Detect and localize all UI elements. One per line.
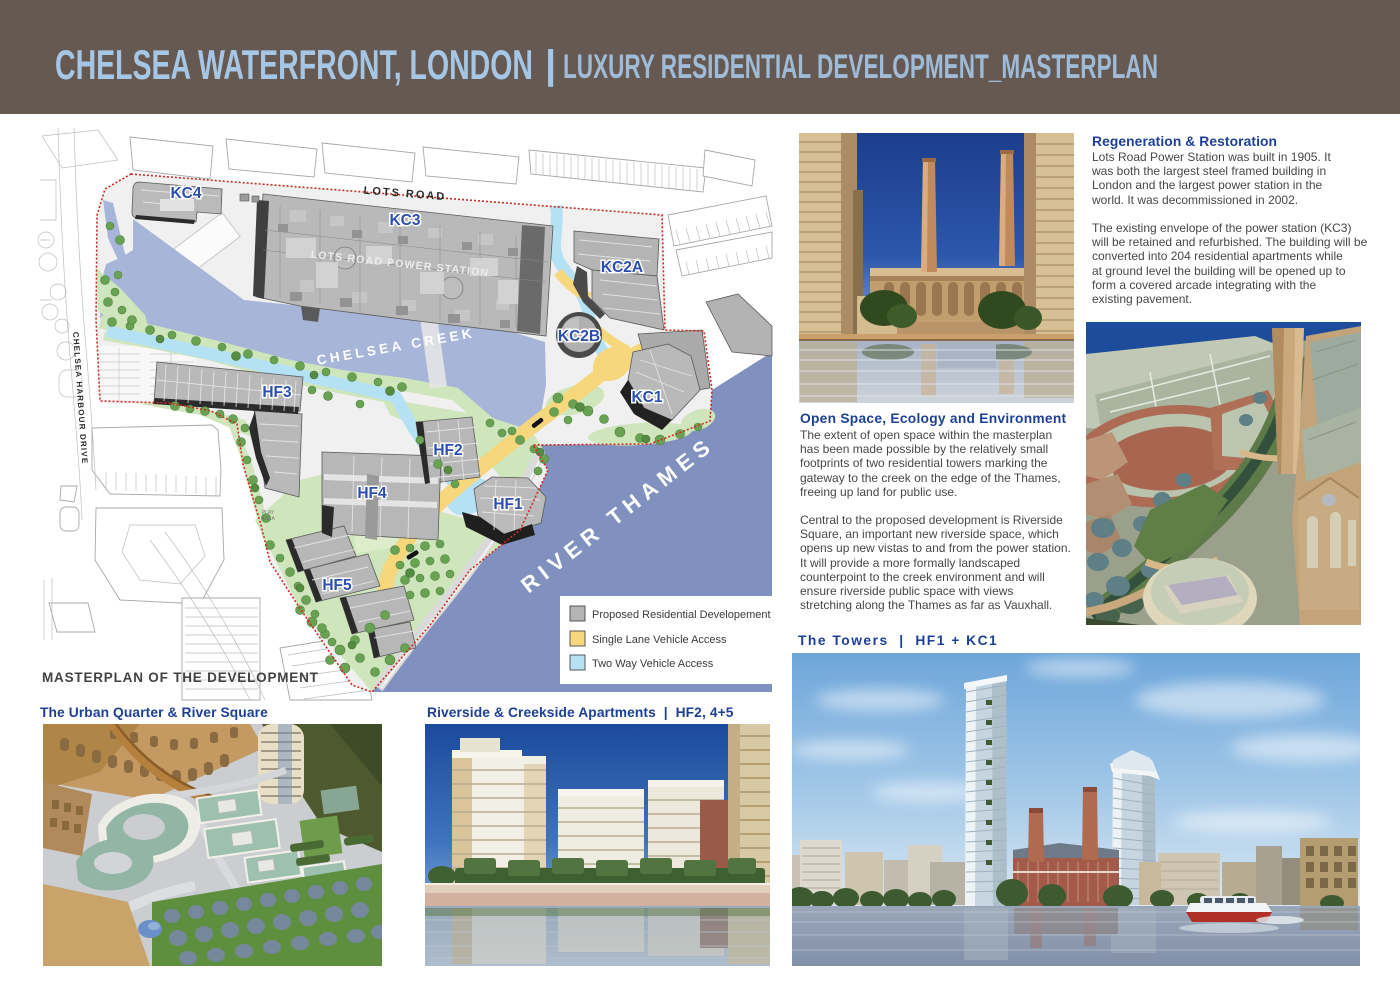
- svg-text:Proposed Residential Developem: Proposed Residential Developement: [592, 609, 771, 621]
- svg-text:KC2A: KC2A: [601, 259, 643, 276]
- svg-text:HF1: HF1: [493, 496, 523, 513]
- svg-text:CHELSEA WATERFRONT, LONDON: CHELSEA WATERFRONT, LONDON: [55, 41, 533, 88]
- svg-text:KC4: KC4: [170, 185, 201, 202]
- svg-text:|: |: [545, 43, 556, 87]
- svg-text:HF5: HF5: [322, 577, 352, 594]
- svg-text:KC2B: KC2B: [558, 328, 600, 345]
- svg-text:HF3: HF3: [262, 384, 292, 401]
- svg-text:AREA: AREA: [261, 516, 275, 522]
- svg-text:MASTERPLAN OF THE DEVELOPMENT: MASTERPLAN OF THE DEVELOPMENT: [42, 670, 319, 685]
- svg-text:LUXURY RESIDENTIAL DEVELOPMENT: LUXURY RESIDENTIAL DEVELOPMENT_MASTERPLA…: [563, 48, 1158, 86]
- svg-text:KC1: KC1: [631, 389, 662, 406]
- svg-text:HF2: HF2: [433, 442, 462, 459]
- svg-text:Single Lane Vehicle Access: Single Lane Vehicle Access: [592, 634, 727, 646]
- svg-text:Two Way Vehicle Access: Two Way Vehicle Access: [592, 658, 714, 670]
- svg-text:KC3: KC3: [389, 212, 420, 229]
- svg-text:HF4: HF4: [357, 485, 387, 502]
